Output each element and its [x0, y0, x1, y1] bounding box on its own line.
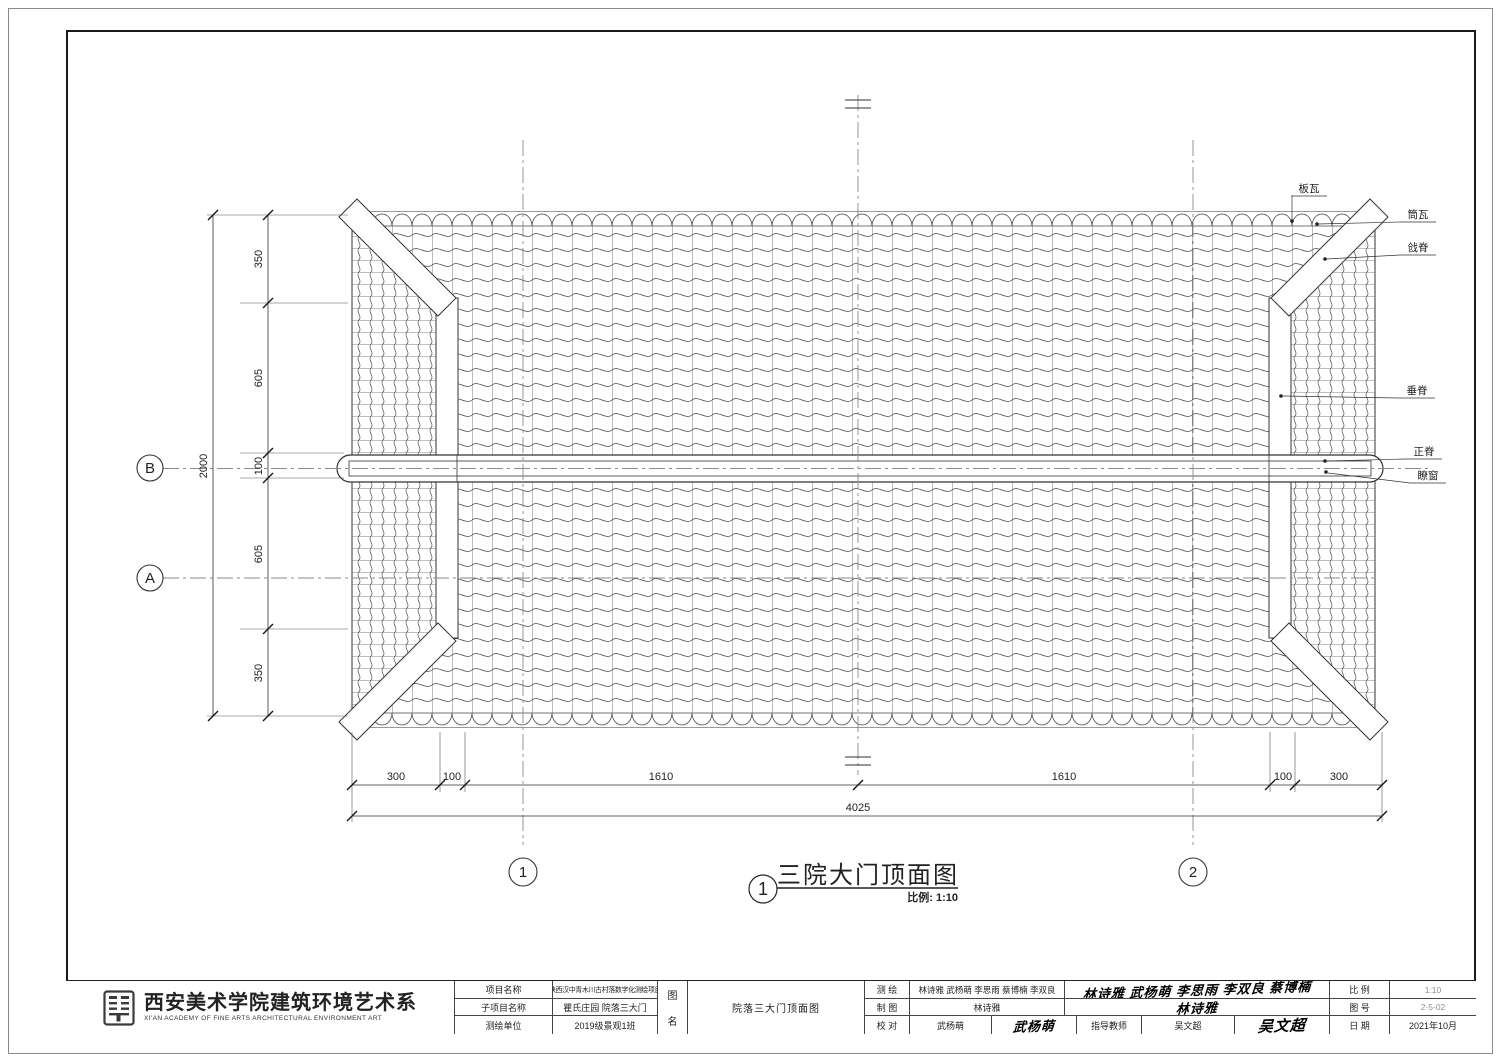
advisor-signature: 吴文超 — [1235, 1016, 1330, 1034]
date-value: 2021年10月 — [1390, 1016, 1476, 1034]
sheet-name-label: 图 名 — [658, 981, 688, 1034]
sheet-number-value: 2-5-02 — [1390, 999, 1476, 1016]
project-label: 项目名称 — [455, 981, 553, 999]
survey-value: 林诗雅 武杨萌 李思雨 蔡博楠 李双良 — [910, 981, 1065, 999]
advisor-label: 指导教师 — [1077, 1016, 1142, 1034]
subproject-value: 瞿氏庄园 院落三大门 — [553, 999, 658, 1016]
annotation-ban-wa: 板瓦 — [1299, 182, 1321, 195]
grid-label-2: 2 — [1189, 864, 1197, 881]
dim-bottom-seg-2: 100 — [443, 771, 461, 783]
title-block: 西安美术学院建筑环境艺术系 XI'AN ACADEMY OF FINE ARTS… — [66, 980, 1476, 1033]
sheet-number-label: 图 号 — [1330, 999, 1390, 1016]
project-value: 陕西汉中青木川古村落数字化测绘项目 — [553, 981, 658, 999]
school-section: 西安美术学院建筑环境艺术系 XI'AN ACADEMY OF FINE ARTS… — [66, 981, 455, 1034]
draft-label: 制 图 — [865, 999, 910, 1016]
dim-bottom-seg-3: 1610 — [649, 771, 673, 783]
view-scale-note: 比例: 1:10 — [907, 890, 958, 904]
survey-unit-label: 测绘单位 — [455, 1016, 553, 1034]
check-label: 校 对 — [865, 1016, 910, 1034]
dim-left-seg-1: 350 — [253, 250, 265, 268]
survey-unit-value: 2019级景观1班 — [553, 1016, 658, 1034]
view-title: 1 三院大门顶面图 比例: 1:10 — [749, 862, 959, 904]
school-name-cn: 西安美术学院建筑环境艺术系 — [144, 993, 417, 1013]
roof-tiles — [337, 199, 1388, 740]
grid-label-b: B — [145, 460, 155, 477]
view-number: 1 — [758, 879, 768, 899]
dim-bottom-seg-6: 300 — [1330, 771, 1348, 783]
dim-bottom-seg-1: 300 — [387, 771, 405, 783]
dim-bottom-seg-5: 100 — [1274, 771, 1292, 783]
draft-signature: 林诗雅 — [1065, 999, 1330, 1016]
date-label: 日 期 — [1330, 1016, 1390, 1034]
annotation-zheng-ji: 正脊 — [1414, 445, 1436, 458]
dimension-ticks — [347, 780, 1387, 821]
dim-left-seg-4: 605 — [253, 545, 265, 563]
dim-bottom-total: 4025 — [846, 802, 870, 814]
roof-plan-drawing: B A 1 2 — [0, 0, 1500, 1061]
check-signature: 武杨萌 — [992, 1016, 1077, 1034]
annotation-qiang-ji: 戗脊 — [1408, 241, 1430, 254]
school-name-en: XI'AN ACADEMY OF FINE ARTS ARCHITECTURAL… — [144, 1015, 417, 1022]
dim-left-seg-3: 100 — [253, 457, 265, 475]
dim-bottom-seg-4: 1610 — [1052, 771, 1076, 783]
dim-left-total: 2000 — [198, 454, 210, 478]
grid-label-1: 1 — [519, 864, 527, 881]
school-name-block: 西安美术学院建筑环境艺术系 XI'AN ACADEMY OF FINE ARTS… — [144, 993, 417, 1022]
survey-signatures: 林诗雅 武杨萌 李思雨 李双良 蔡博楠 — [1065, 981, 1330, 999]
bottom-dimension-chain: 300 100 1610 1610 100 300 4025 — [347, 732, 1387, 822]
grid-label-a: A — [145, 570, 155, 587]
view-title-text: 三院大门顶面图 — [777, 862, 959, 889]
drawing-sheet: B A 1 2 — [0, 0, 1500, 1061]
survey-label: 测 绘 — [865, 981, 910, 999]
advisor-value: 吴文超 — [1142, 1016, 1235, 1034]
scale-value: 1:10 — [1390, 981, 1476, 999]
scale-label: 比 例 — [1330, 981, 1390, 999]
school-logo — [103, 990, 135, 1026]
dim-left-seg-5: 350 — [253, 664, 265, 682]
annotation-tong-wa: 筒瓦 — [1408, 208, 1430, 221]
annotation-liao-chuang: 瞭窗 — [1418, 469, 1439, 482]
annotation-chui-ji: 垂脊 — [1407, 384, 1429, 397]
dim-left-seg-2: 605 — [253, 369, 265, 387]
check-value: 武杨萌 — [910, 1016, 992, 1034]
sheet-name-value: 院落三大门顶面图 — [688, 981, 865, 1034]
left-dimension-chain: 350 605 100 605 350 2000 — [198, 210, 348, 721]
subproject-label: 子项目名称 — [455, 999, 553, 1016]
draft-value: 林诗雅 — [910, 999, 1065, 1016]
